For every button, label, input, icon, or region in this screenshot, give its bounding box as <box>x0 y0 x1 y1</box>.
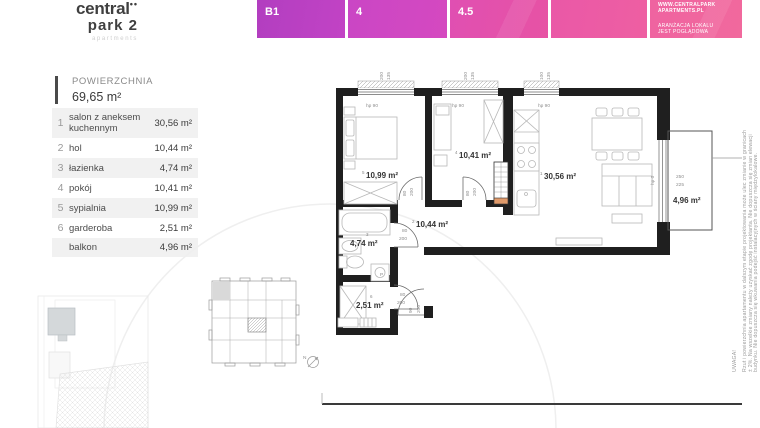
dining-table <box>592 118 642 150</box>
desk <box>434 155 447 166</box>
svg-text:hp 90: hp 90 <box>538 103 550 109</box>
svg-text:200: 200 <box>463 72 469 80</box>
doors <box>394 177 486 315</box>
furniture <box>338 100 652 327</box>
north-compass-icon: N <box>303 355 319 368</box>
label-sypialnia: 10,99 m² <box>366 171 398 180</box>
label-pokoj: 10,41 m² <box>459 151 491 160</box>
label-balkon: 4,96 m² <box>673 196 701 205</box>
svg-text:80: 80 <box>400 292 406 298</box>
svg-text:80: 80 <box>465 190 471 196</box>
svg-text:135: 135 <box>470 72 476 80</box>
svg-text:1: 1 <box>540 171 543 176</box>
label-garderoba: 2,51 m² <box>356 301 384 310</box>
tv-cabinet <box>556 238 602 245</box>
svg-text:225: 225 <box>676 182 684 188</box>
coffee-table <box>612 214 642 223</box>
disclaimer-line: budynku. Nie dopuszcza się wkuwania pode… <box>754 60 760 372</box>
svg-text:200: 200 <box>409 188 415 196</box>
disclaimer-title: UWAGA! <box>733 60 739 372</box>
svg-text:hp 90: hp 90 <box>452 103 464 109</box>
apartment-plan-page: { "header": { "logo": { "name": "central… <box>0 0 760 428</box>
label-salon: 30,56 m² <box>544 172 576 181</box>
label-lazienka: 4,74 m² <box>350 239 378 248</box>
svg-text:6: 6 <box>370 294 373 299</box>
key-plan-core <box>248 318 266 332</box>
sofa <box>602 164 652 206</box>
disclaimer-note: UWAGA! Rzut i powierzchnia apartamentu w… <box>733 60 760 372</box>
svg-text:80: 80 <box>402 190 408 196</box>
installation-shaft <box>494 162 508 204</box>
svg-text:90: 90 <box>408 307 414 313</box>
site-map <box>38 204 556 428</box>
svg-text:hp 90: hp 90 <box>366 103 378 109</box>
svg-text:250: 250 <box>676 174 684 180</box>
nightstand <box>344 107 355 115</box>
svg-text:hp 0: hp 0 <box>650 175 656 185</box>
floor-plan-drawing: N <box>0 0 760 428</box>
svg-text:200: 200 <box>472 188 478 196</box>
svg-text:4: 4 <box>455 150 458 155</box>
svg-text:135: 135 <box>386 72 392 80</box>
svg-text:200: 200 <box>416 305 422 313</box>
toilet <box>339 256 347 268</box>
svg-text:100: 100 <box>539 72 545 80</box>
label-hol: 10,44 m² <box>416 220 448 229</box>
svg-text:200: 200 <box>397 300 405 306</box>
nightstand <box>344 161 355 169</box>
svg-text:200: 200 <box>399 236 407 242</box>
svg-text:200: 200 <box>379 72 385 80</box>
svg-text:N: N <box>303 355 307 361</box>
site-map-current-building <box>48 308 75 335</box>
stove <box>514 143 539 171</box>
balcony <box>668 131 742 230</box>
key-plan-highlight-unit <box>213 282 230 300</box>
washer-label: P <box>380 272 383 278</box>
svg-text:135: 135 <box>546 72 552 80</box>
svg-text:5: 5 <box>362 170 365 175</box>
window-sills <box>358 81 559 88</box>
apartment-plan: 5 10,99 m² 4 10,41 m² 1 30,56 m² 2 10,44… <box>322 72 742 404</box>
key-plan <box>209 278 299 366</box>
svg-text:80: 80 <box>402 228 408 234</box>
